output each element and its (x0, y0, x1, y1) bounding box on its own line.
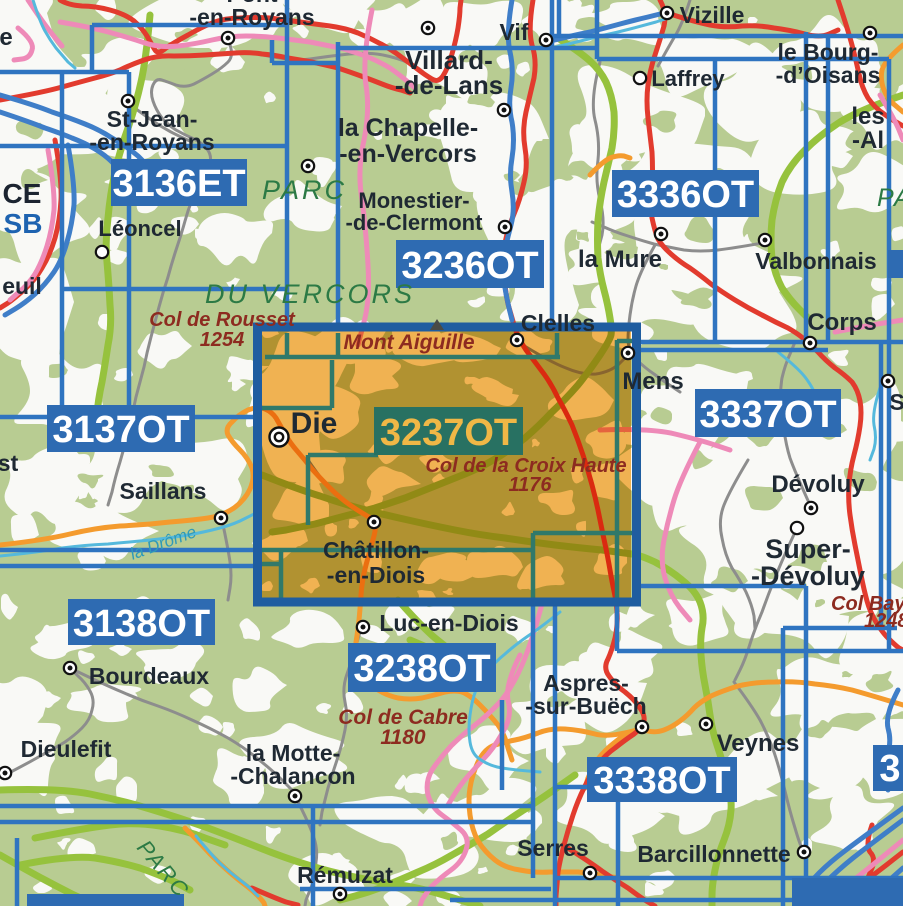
svg-text:st: st (0, 450, 19, 476)
svg-text:3336OT: 3336OT (617, 174, 754, 216)
svg-text:CE: CE (3, 178, 42, 209)
svg-text:-sur-Buëch: -sur-Buëch (525, 693, 646, 719)
svg-text:-de-Clermont: -de-Clermont (346, 210, 484, 235)
svg-text:Luc-en-Diois: Luc-en-Diois (379, 610, 518, 636)
svg-text:3337OT: 3337OT (699, 394, 836, 436)
svg-text:-en-Royans: -en-Royans (189, 4, 314, 30)
svg-text:les: les (851, 103, 884, 130)
svg-text:DU VERCORS: DU VERCORS (205, 279, 415, 309)
svg-text:Mens: Mens (622, 368, 683, 395)
svg-text:Vizille: Vizille (680, 2, 745, 28)
svg-text:-Dévoluy: -Dévoluy (751, 561, 865, 591)
svg-text:-en-Royans: -en-Royans (89, 129, 214, 155)
svg-text:Clelles: Clelles (521, 310, 595, 336)
svg-text:3338OT: 3338OT (593, 760, 730, 802)
svg-text:Saillans: Saillans (120, 478, 207, 504)
svg-text:Laffrey: Laffrey (651, 66, 725, 91)
svg-text:euil: euil (2, 273, 42, 299)
svg-text:-en-Diois: -en-Diois (327, 562, 425, 588)
svg-text:1248: 1248 (864, 610, 903, 632)
svg-text:SB: SB (4, 208, 43, 239)
svg-text:S: S (889, 389, 903, 415)
svg-text:Bourdeaux: Bourdeaux (89, 663, 209, 689)
svg-text:Corps: Corps (807, 309, 876, 336)
svg-text:Châtillon-: Châtillon- (323, 537, 429, 563)
svg-text:Valbonnais: Valbonnais (755, 248, 876, 274)
svg-text:PARC: PARC (262, 175, 347, 205)
svg-text:3138OT: 3138OT (73, 603, 210, 645)
svg-text:la Mure: la Mure (578, 246, 662, 273)
svg-text:Serres: Serres (517, 835, 589, 861)
svg-text:1176: 1176 (508, 474, 552, 496)
svg-text:3136ET: 3136ET (112, 163, 245, 205)
svg-text:-Chalancon: -Chalancon (230, 763, 355, 789)
svg-text:e: e (0, 24, 13, 51)
svg-text:Super-: Super- (765, 534, 851, 564)
svg-text:3236OT: 3236OT (401, 245, 538, 287)
svg-text:la Chapelle-: la Chapelle- (338, 114, 478, 142)
svg-text:-en-Vercors: -en-Vercors (339, 140, 477, 168)
svg-text:Léoncel: Léoncel (98, 216, 181, 241)
svg-text:PA: PA (877, 184, 903, 212)
svg-text:3237OT: 3237OT (380, 412, 517, 454)
svg-text:1180: 1180 (380, 726, 425, 749)
svg-text:Veynes: Veynes (717, 730, 800, 757)
svg-text:Col de Rousset: Col de Rousset (149, 309, 296, 331)
svg-text:3: 3 (879, 748, 900, 790)
svg-text:Barcillonnette: Barcillonnette (637, 841, 790, 867)
svg-text:Vif: Vif (500, 19, 529, 45)
svg-text:-de-Lans: -de-Lans (395, 70, 503, 100)
svg-text:Dieulefit: Dieulefit (21, 736, 112, 762)
svg-text:Die: Die (291, 407, 338, 440)
svg-text:Mont Aiguille: Mont Aiguille (343, 331, 474, 354)
svg-text:3238OT: 3238OT (353, 648, 490, 690)
svg-text:Dévoluy: Dévoluy (771, 471, 865, 498)
svg-text:-d’Oisans: -d’Oisans (776, 62, 881, 88)
svg-text:-Al: -Al (852, 127, 884, 154)
svg-text:1254: 1254 (200, 329, 245, 351)
svg-text:3137OT: 3137OT (52, 409, 189, 451)
svg-text:Rémuzat: Rémuzat (297, 862, 393, 888)
